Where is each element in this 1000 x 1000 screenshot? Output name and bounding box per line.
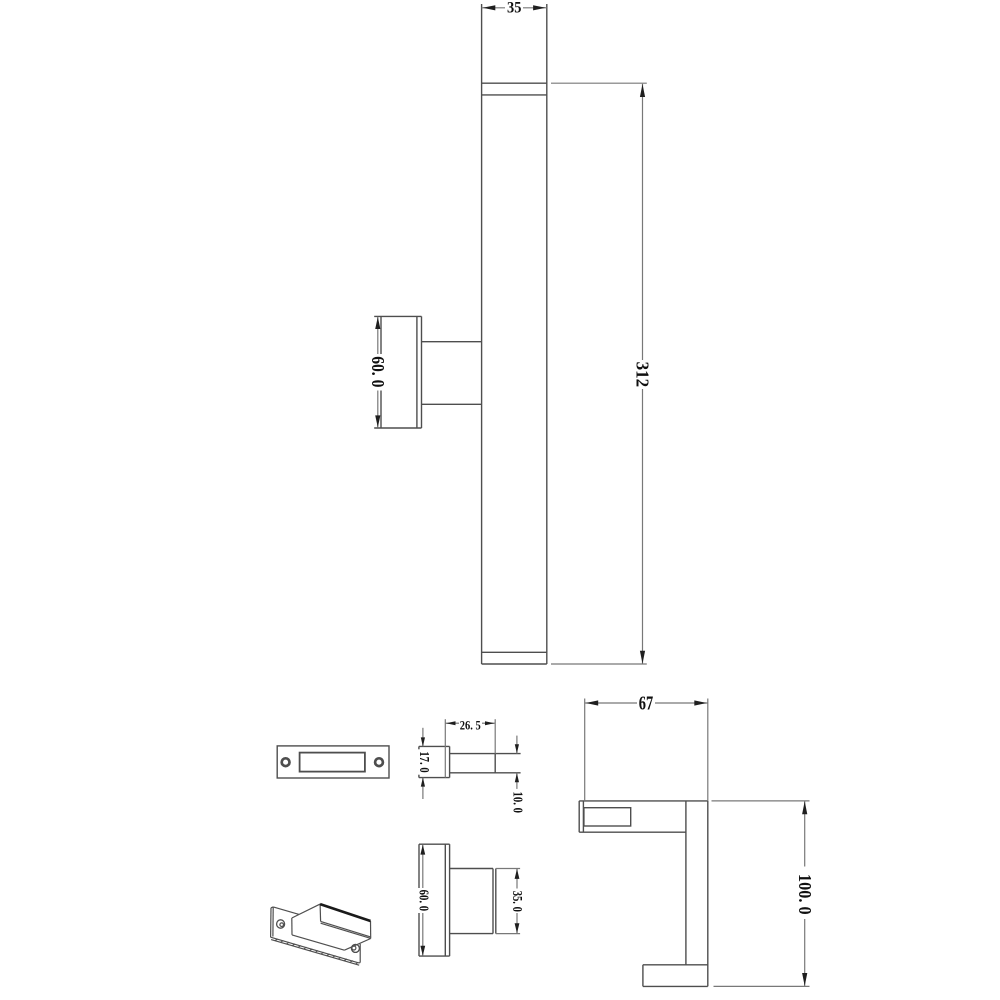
svg-text:26. 5: 26. 5 xyxy=(460,718,481,733)
svg-text:10. 0: 10. 0 xyxy=(510,792,525,814)
svg-text:35: 35 xyxy=(507,0,522,17)
svg-text:60. 0: 60. 0 xyxy=(416,890,431,912)
svg-text:17. 0: 17. 0 xyxy=(416,751,431,772)
svg-text:100. 0: 100. 0 xyxy=(795,874,815,915)
svg-text:60. 0: 60. 0 xyxy=(368,356,388,387)
svg-text:312: 312 xyxy=(633,362,653,388)
svg-text:35. 0: 35. 0 xyxy=(509,891,524,912)
svg-text:67: 67 xyxy=(639,693,653,715)
